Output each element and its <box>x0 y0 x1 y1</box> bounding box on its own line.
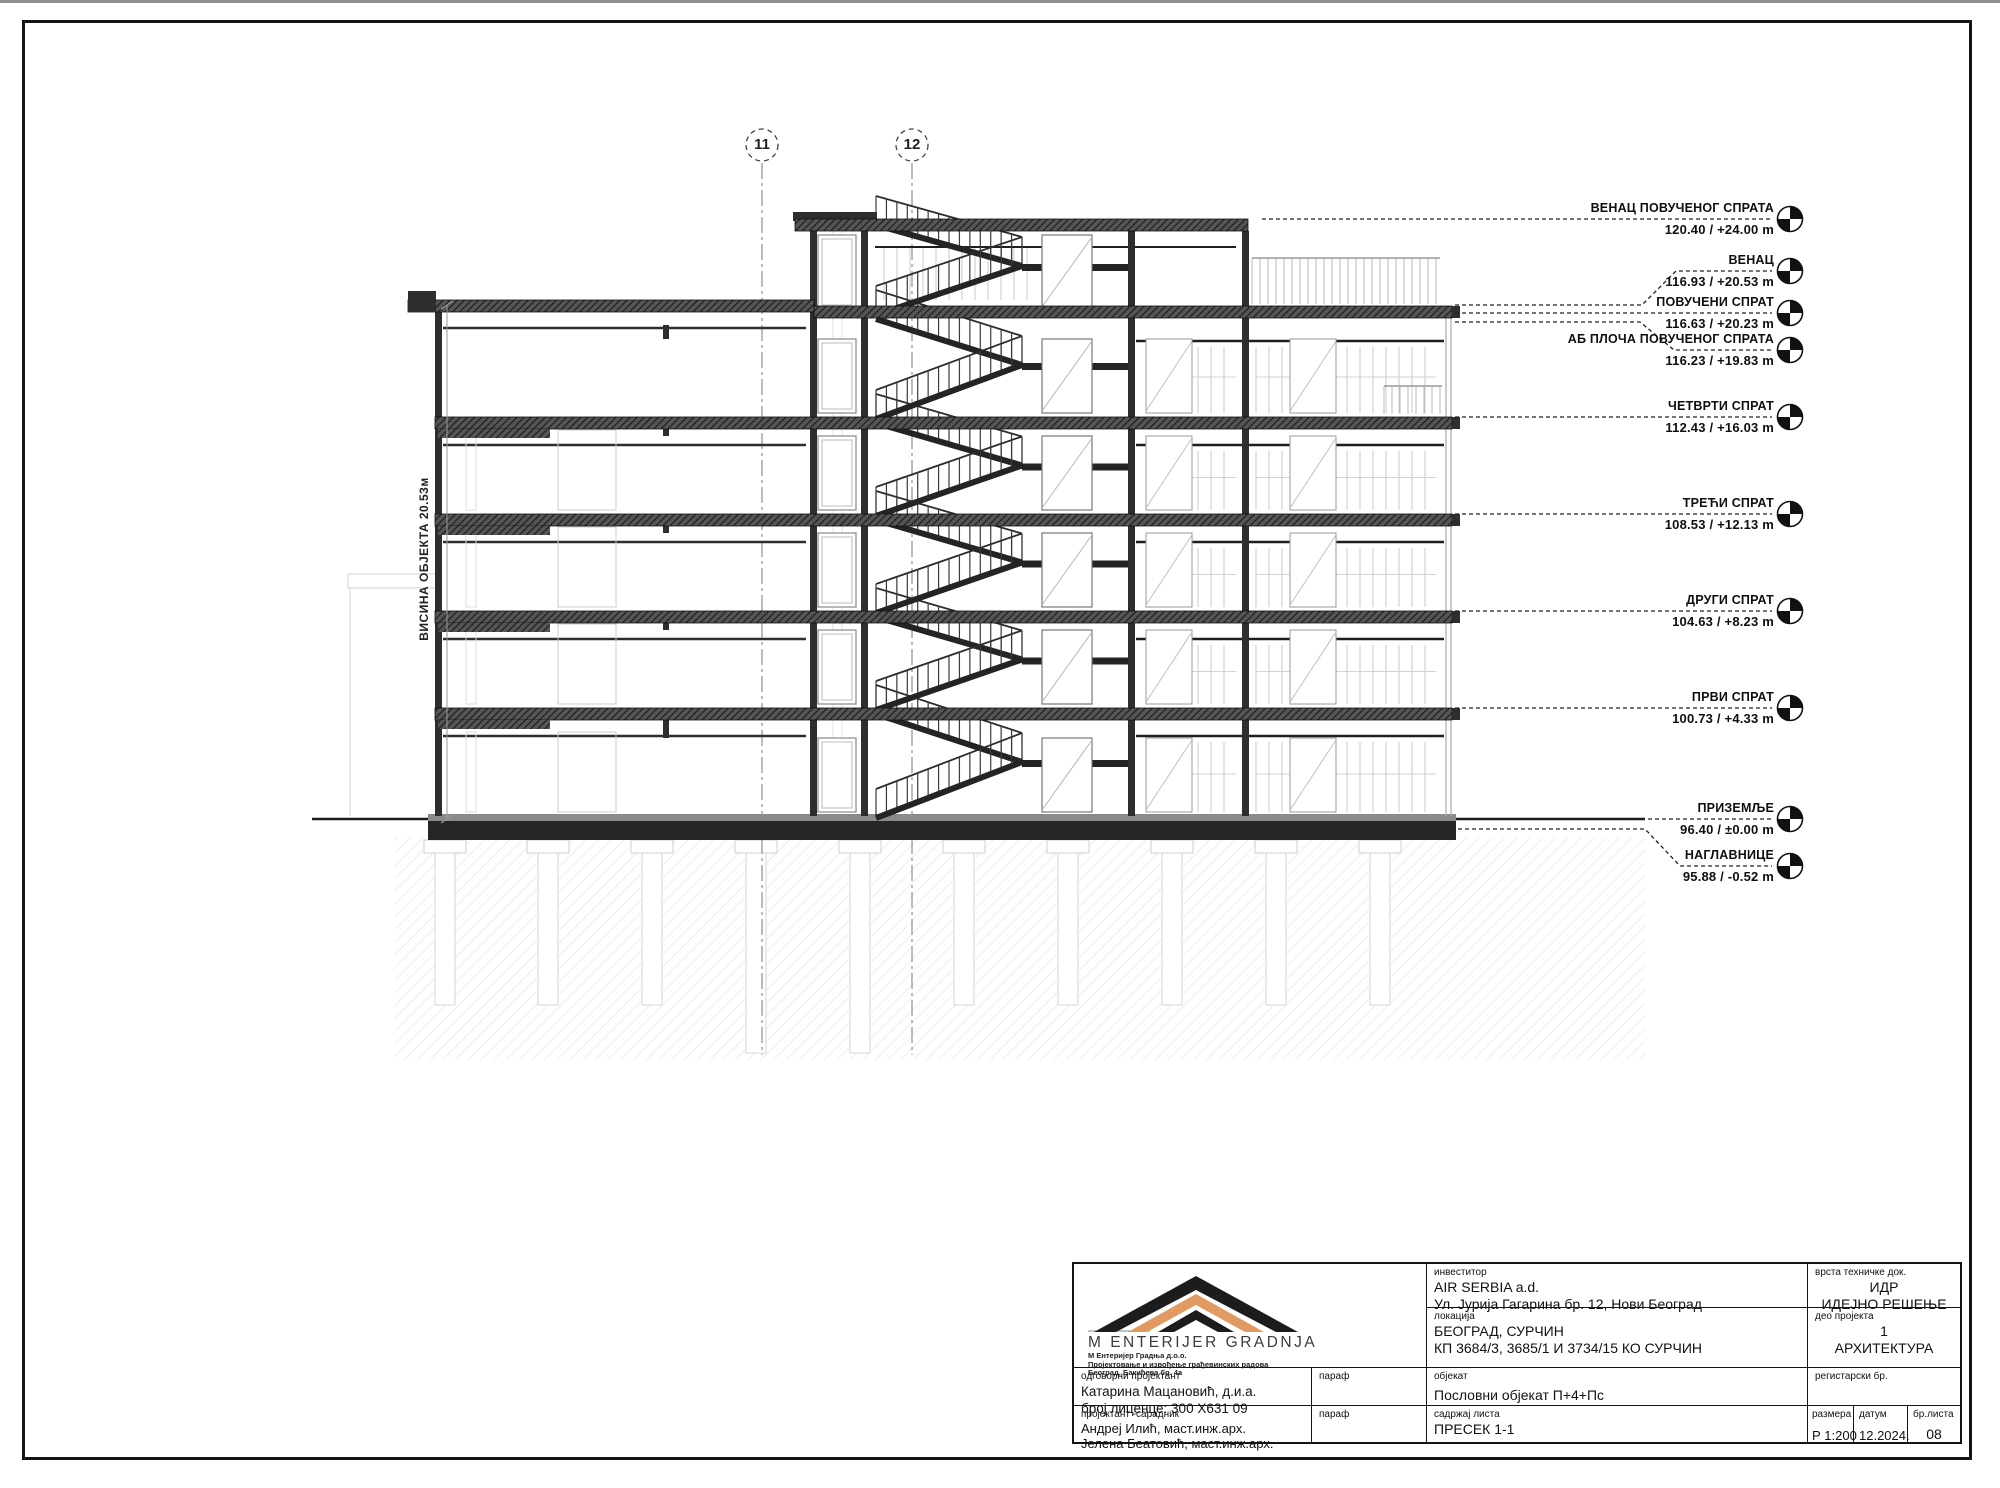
level-label: ЧЕТВРТИ СПРАТ <box>1668 399 1774 414</box>
level-label: ВЕНАЦ <box>1728 253 1774 268</box>
company-name: M ENTERIJER GRADNJA <box>1074 1334 1426 1352</box>
doc-type-cell: врста техничке док. ИДР ИДЕЈНО РЕШЕЊЕ <box>1808 1264 1960 1308</box>
object-cell: објекат Пословни објекат П+4+Пс <box>1427 1368 1808 1406</box>
sheet-number-label: бр.листа <box>1908 1406 1960 1421</box>
level-value: 116.23 / +19.83 m <box>1665 353 1774 368</box>
paraf-cell: параф <box>1312 1368 1427 1406</box>
company-logo-icon <box>1088 1272 1314 1334</box>
object-value: Пословни објекат П+4+Пс <box>1427 1383 1807 1404</box>
doc-type-short: ИДР <box>1808 1279 1960 1296</box>
paraf-label: параф <box>1312 1368 1426 1383</box>
lead-designer-label: одговорни пројектант <box>1074 1368 1311 1383</box>
section-marker-12: 12 <box>895 136 929 154</box>
level-value: 100.73 / +4.33 m <box>1672 711 1774 726</box>
object-label: објекат <box>1427 1368 1807 1383</box>
paraf-cell-2: параф <box>1312 1406 1427 1442</box>
sheet-content-cell: садржај листа ПРЕСЕК 1-1 <box>1427 1406 1808 1442</box>
scale-cell: размера Р 1:200 <box>1808 1406 1854 1442</box>
project-part-number: 1 <box>1808 1323 1960 1340</box>
collaborator-name-2: Јелена Беатовић, маст.инж.арх. <box>1074 1436 1311 1451</box>
date-value: 12.2024. <box>1854 1421 1907 1444</box>
level-value: 120.40 / +24.00 m <box>1665 222 1774 237</box>
scale-value: Р 1:200 <box>1808 1421 1853 1444</box>
doc-type-label: врста техничке док. <box>1808 1264 1960 1279</box>
registry-label: регистарски бр. <box>1808 1368 1960 1383</box>
project-part-label: део пројекта <box>1808 1308 1960 1323</box>
scale-label: размера <box>1808 1406 1853 1421</box>
level-value: 108.53 / +12.13 m <box>1665 517 1774 532</box>
level-label: АБ ПЛОЧА ПОВУЧЕНОГ СПРАТА <box>1568 332 1774 347</box>
location-parcel: КП 3684/3, 3685/1 И 3734/15 КО СУРЧИН <box>1427 1340 1807 1357</box>
level-value: 104.63 / +8.23 m <box>1672 614 1774 629</box>
date-label: датум <box>1854 1406 1907 1421</box>
sheet-number-value: 08 <box>1908 1421 1960 1443</box>
drawing-sheet: 11 12 ВИСИНА ОБЈЕКТА 20.53м ВЕНАЦ ПОВУЧЕ… <box>0 0 2000 1488</box>
section-marker-11: 11 <box>745 136 779 154</box>
building-height-label: ВИСИНА ОБЈЕКТА 20.53м <box>417 453 431 665</box>
location-city: БЕОГРАД, СУРЧИН <box>1427 1323 1807 1340</box>
level-value: 116.63 / +20.23 m <box>1665 316 1774 331</box>
investor-label: инвеститор <box>1427 1264 1807 1279</box>
collaborator-cell: пројектант -сарадник Андреј Илић, маст.и… <box>1074 1406 1312 1442</box>
level-label: ТРЕЋИ СПРАТ <box>1683 496 1774 511</box>
location-label: локација <box>1427 1308 1807 1323</box>
investor-name: AIR SERBIA a.d. <box>1427 1279 1807 1296</box>
lead-designer-name: Катарина Мацановић, д.и.а. <box>1074 1383 1311 1400</box>
sheet-content-value: ПРЕСЕК 1-1 <box>1427 1421 1807 1438</box>
company-logo-cell: M ENTERIJER GRADNJA М Ентеријер Градња д… <box>1074 1264 1427 1368</box>
level-label: НАГЛАВНИЦЕ <box>1685 848 1774 863</box>
date-cell: датум 12.2024. <box>1854 1406 1908 1442</box>
collaborator-name-1: Андреј Илић, маст.инж.арх. <box>1074 1421 1311 1436</box>
level-value: 95.88 / -0.52 m <box>1683 869 1774 884</box>
level-label: ПРИЗЕМЉЕ <box>1698 801 1775 816</box>
project-part-cell: део пројекта 1 АРХИТЕКТУРА <box>1808 1308 1960 1368</box>
registry-cell: регистарски бр. <box>1808 1368 1960 1406</box>
level-value: 96.40 / ±0.00 m <box>1680 822 1774 837</box>
level-label: ПОВУЧЕНИ СПРАТ <box>1656 295 1774 310</box>
level-label: ПРВИ СПРАТ <box>1692 690 1774 705</box>
level-value: 112.43 / +16.03 m <box>1665 420 1774 435</box>
location-cell: локација БЕОГРАД, СУРЧИН КП 3684/3, 3685… <box>1427 1308 1808 1368</box>
level-label: ДРУГИ СПРАТ <box>1686 593 1774 608</box>
title-block: M ENTERIJER GRADNJA М Ентеријер Градња д… <box>1072 1262 1962 1444</box>
project-part-name: АРХИТЕКТУРА <box>1808 1340 1960 1357</box>
paraf-label-2: параф <box>1312 1406 1426 1421</box>
investor-cell: инвеститор AIR SERBIA a.d. Ул. Јурија Га… <box>1427 1264 1808 1308</box>
level-label: ВЕНАЦ ПОВУЧЕНОГ СПРАТА <box>1591 201 1774 216</box>
level-value: 116.93 / +20.53 m <box>1665 274 1774 289</box>
lead-designer-cell: одговорни пројектант Катарина Мацановић,… <box>1074 1368 1312 1406</box>
sheet-content-label: садржај листа <box>1427 1406 1807 1421</box>
sheet-number-cell: бр.листа 08 <box>1908 1406 1960 1442</box>
collaborator-label: пројектант -сарадник <box>1074 1406 1311 1421</box>
